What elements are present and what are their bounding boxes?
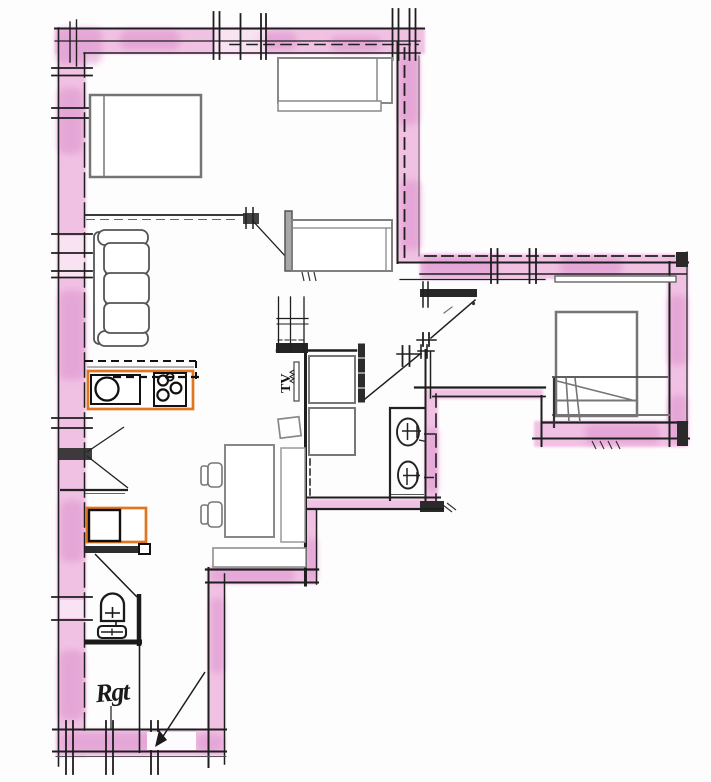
svg-text:Rgt: Rgt bbox=[93, 676, 132, 708]
svg-text:TV: TV bbox=[279, 374, 294, 393]
